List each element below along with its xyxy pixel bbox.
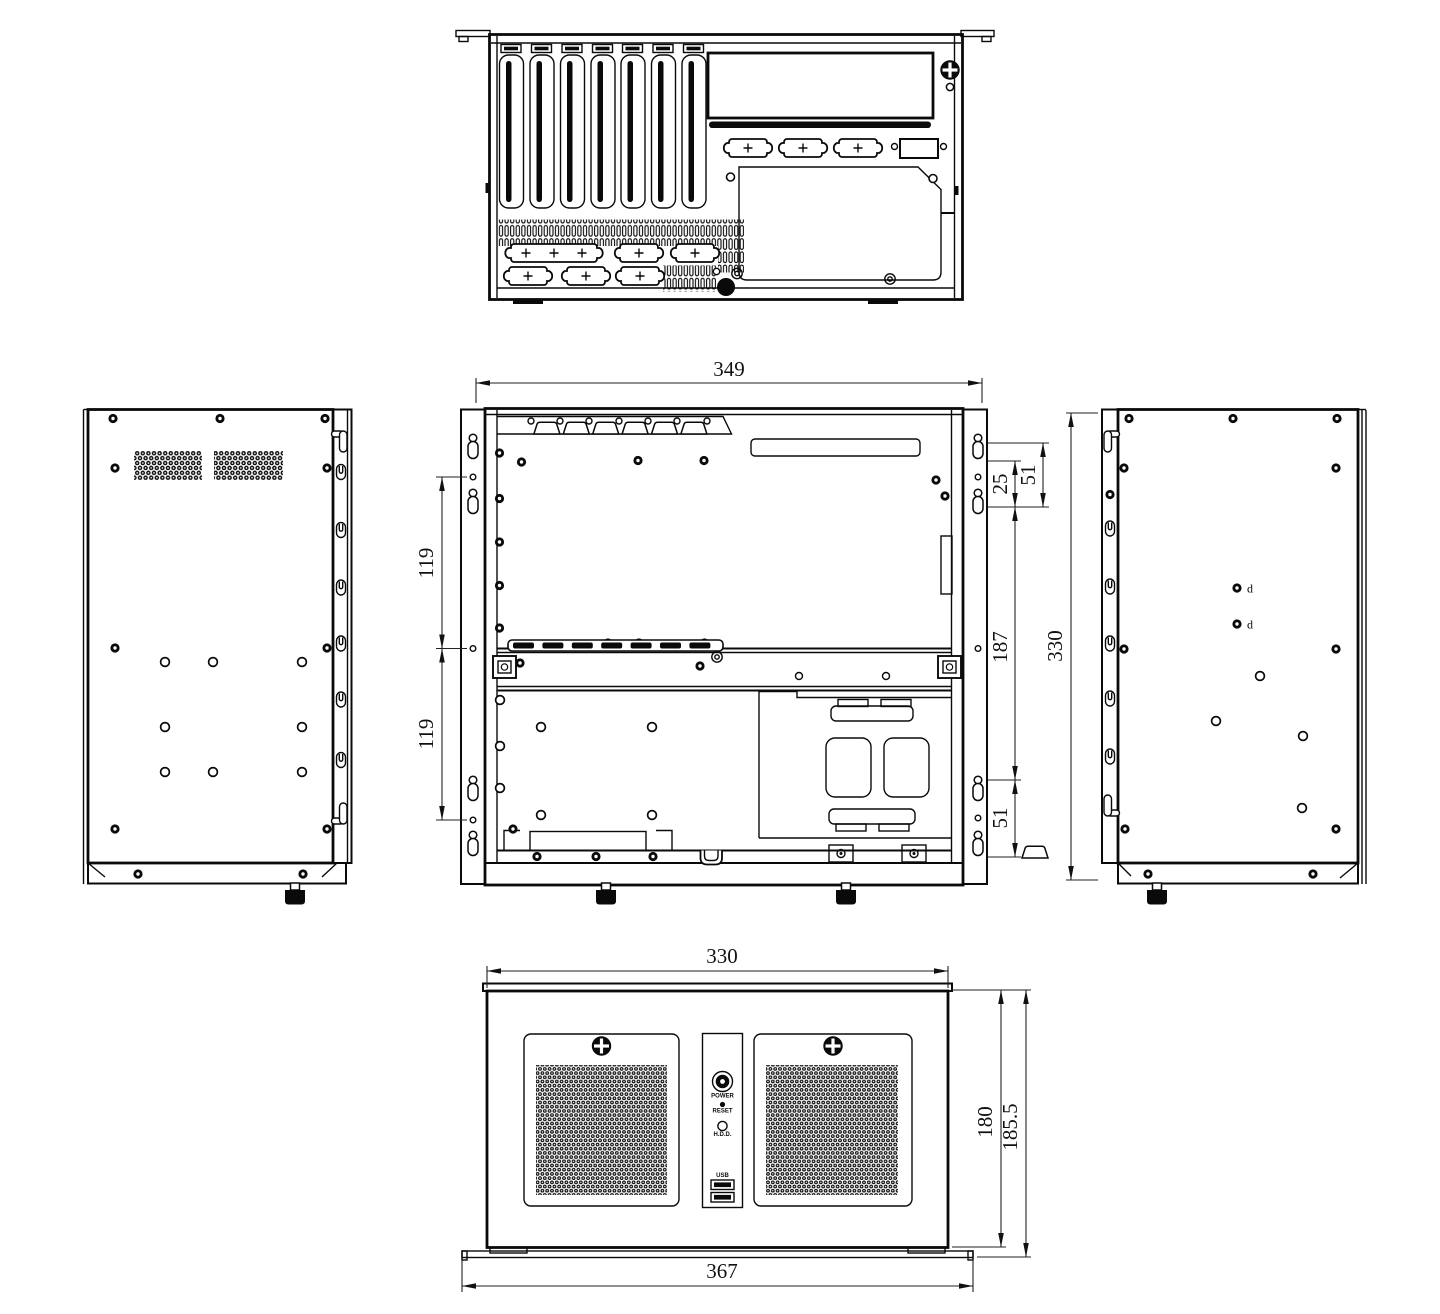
psu-opening	[708, 53, 933, 118]
hdd-bay-outline	[759, 692, 952, 839]
usb-port[interactable]	[711, 1193, 734, 1203]
dim-label-330-side: 330	[1043, 630, 1067, 662]
mesh-grille-left	[524, 1034, 679, 1206]
slot-bracket-row	[497, 417, 1048, 859]
dim-label-119-lower: 119	[414, 719, 438, 750]
standoff-holes-upper	[495, 448, 950, 647]
db9-port	[779, 139, 827, 157]
screw-icon	[885, 274, 895, 284]
chassis-drawing: d d POWER RESET H.D.D. USB	[0, 0, 1440, 1314]
dim-front-width: 330	[487, 944, 948, 988]
db25-port	[505, 244, 602, 262]
dim-rack-width: 349	[476, 357, 982, 403]
serial-ports-middle	[724, 139, 947, 158]
dim-label-185-5: 185.5	[998, 1103, 1022, 1150]
lower-compartment	[496, 692, 952, 865]
foot-pad	[285, 883, 305, 905]
db9-port	[615, 244, 663, 262]
db9-port	[834, 139, 882, 157]
reset-button[interactable]	[720, 1102, 725, 1107]
right-panel-outline	[1118, 410, 1358, 864]
hdd-led	[718, 1121, 727, 1130]
expansion-slots	[500, 45, 707, 209]
mesh-grille-right	[754, 1034, 912, 1206]
control-strip: POWER RESET H.D.D. USB	[703, 1034, 743, 1208]
power-label: POWER	[711, 1094, 734, 1100]
dim-left-pitch: 119 119	[414, 477, 467, 820]
right-panel-holes	[1119, 414, 1341, 834]
hole-label-d-lower: d	[1247, 618, 1253, 632]
dim-right-keyholes: 25 51 187 51	[988, 443, 1049, 857]
psu-slot-inside	[751, 439, 920, 456]
dim-front-overall-width: 367	[462, 1259, 973, 1292]
usb-label: USB	[716, 1173, 729, 1179]
right-panel-skirt	[1118, 863, 1358, 884]
rear-rail	[709, 122, 931, 129]
dim-label-51-bottom: 51	[988, 808, 1012, 829]
left-panel-outline	[88, 410, 333, 864]
left-side-view	[84, 410, 352, 905]
dim-label-367: 367	[706, 1259, 738, 1283]
front-bottom-flange	[462, 1251, 973, 1258]
psu-bay-cutout	[739, 167, 941, 280]
power-inlet-hole	[717, 278, 735, 296]
db9-port	[562, 267, 610, 285]
cross-rail	[493, 640, 961, 691]
db9-port	[724, 139, 772, 157]
thumbscrew-icon	[941, 61, 959, 79]
usb-port[interactable]	[711, 1180, 734, 1190]
hdd-bracket	[826, 700, 929, 832]
reset-label: RESET	[712, 1109, 732, 1115]
engineering-drawing-canvas: d d POWER RESET H.D.D. USB	[0, 0, 1440, 1314]
cable-notch	[701, 851, 723, 865]
dimension-annotations: 349 119 119 25 51	[414, 357, 1098, 1292]
rack-ear-left	[456, 31, 490, 37]
dim-label-187: 187	[988, 631, 1012, 663]
vent-grid	[214, 451, 283, 480]
db9-port	[504, 267, 552, 285]
hole-label-d-upper: d	[1247, 582, 1253, 596]
dim-front-heights: 180 185.5	[952, 990, 1031, 1257]
db9-port	[671, 244, 719, 262]
dim-label-25: 25	[988, 474, 1012, 495]
dim-label-119-upper: 119	[414, 548, 438, 579]
foot-pad	[1147, 883, 1167, 905]
dim-side-height: 330	[1043, 413, 1098, 880]
grille-screw-icon	[824, 1037, 842, 1055]
right-side-view: d d	[1102, 410, 1366, 905]
rear-panel-view	[456, 31, 994, 305]
front-panel-view: POWER RESET H.D.D. USB	[462, 984, 973, 1261]
grille-screw-icon	[593, 1037, 611, 1055]
hdd-label: H.D.D.	[714, 1132, 732, 1138]
rack-ear-right	[961, 31, 994, 37]
vent-grid	[134, 451, 202, 480]
dim-label-349: 349	[713, 357, 745, 381]
dim-label-330-front: 330	[706, 944, 738, 968]
db9-port	[616, 267, 664, 285]
port-cutout	[900, 139, 938, 158]
dim-label-180: 180	[973, 1106, 997, 1138]
main-side-view	[461, 409, 1048, 905]
dim-label-51-top: 51	[1016, 465, 1040, 486]
